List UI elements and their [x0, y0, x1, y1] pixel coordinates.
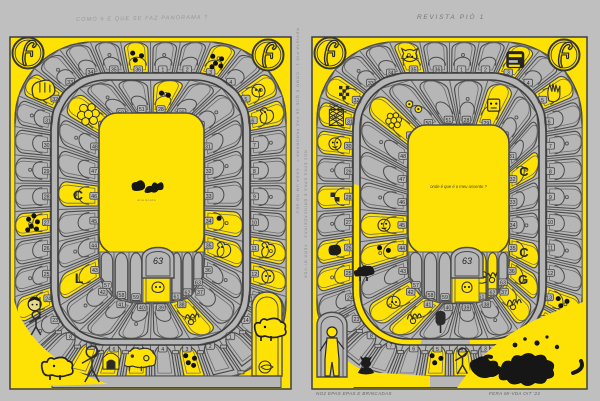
svg-text:57: 57 — [104, 283, 110, 289]
svg-text:C: C — [519, 164, 529, 179]
svg-text:29: 29 — [44, 169, 50, 175]
svg-text:63: 63 — [153, 256, 163, 266]
svg-text:30: 30 — [44, 143, 50, 149]
svg-text:6: 6 — [113, 347, 116, 353]
svg-text:46: 46 — [91, 194, 97, 200]
svg-text:25: 25 — [44, 272, 50, 278]
svg-text:23: 23 — [354, 317, 360, 323]
svg-text:46: 46 — [399, 200, 405, 206]
svg-text:45: 45 — [399, 223, 405, 229]
svg-text:C: C — [73, 187, 83, 203]
svg-text:48: 48 — [400, 154, 406, 160]
svg-text:26: 26 — [346, 246, 352, 252]
svg-text:33: 33 — [206, 194, 212, 200]
svg-text:8: 8 — [549, 169, 552, 175]
svg-text:23: 23 — [52, 318, 58, 324]
svg-text:62: 62 — [185, 290, 191, 296]
svg-text:44: 44 — [399, 246, 405, 252]
svg-text:41: 41 — [425, 302, 431, 308]
svg-text:33: 33 — [510, 200, 516, 206]
svg-text:62: 62 — [490, 290, 496, 296]
svg-text:G: G — [518, 272, 528, 287]
svg-text:41: 41 — [118, 303, 124, 309]
svg-text:8: 8 — [370, 334, 373, 340]
svg-text:59: 59 — [133, 295, 139, 301]
svg-text:27: 27 — [346, 220, 352, 226]
svg-text:61: 61 — [174, 295, 180, 301]
svg-text:32: 32 — [206, 169, 212, 175]
svg-text:28: 28 — [44, 195, 50, 201]
svg-text:34: 34 — [206, 219, 212, 225]
svg-text:REVISTA PIÓ 1 · COMO É QUE SE: REVISTA PIÓ 1 · COMO É QUE SE FAZ PANORA… — [296, 28, 301, 214]
svg-text:7: 7 — [549, 144, 552, 150]
svg-text:32: 32 — [510, 177, 516, 183]
svg-text:57: 57 — [413, 283, 419, 289]
svg-text:39: 39 — [158, 306, 164, 312]
svg-text:45: 45 — [91, 219, 97, 225]
svg-text:3: 3 — [484, 347, 487, 353]
svg-text:47: 47 — [91, 169, 97, 175]
svg-text:24: 24 — [347, 296, 353, 302]
svg-text:37: 37 — [501, 290, 507, 296]
svg-text:36: 36 — [205, 268, 211, 274]
svg-text:26: 26 — [44, 246, 50, 252]
svg-text:43: 43 — [400, 269, 406, 275]
svg-text:51: 51 — [445, 118, 451, 124]
svg-text:2: 2 — [209, 344, 212, 350]
svg-text:48: 48 — [92, 145, 98, 151]
svg-text:11: 11 — [252, 246, 258, 252]
svg-text:40: 40 — [445, 306, 451, 312]
svg-text:63: 63 — [500, 281, 506, 287]
svg-text:35: 35 — [206, 244, 212, 250]
svg-text:38: 38 — [179, 303, 185, 309]
svg-text:28: 28 — [464, 118, 470, 124]
svg-text:14: 14 — [243, 318, 249, 324]
svg-text:L: L — [75, 270, 84, 286]
svg-text:12: 12 — [547, 271, 553, 277]
svg-text:7: 7 — [390, 344, 393, 350]
svg-text:43: 43 — [92, 268, 98, 274]
svg-text:31: 31 — [347, 120, 353, 126]
svg-text:24: 24 — [45, 297, 51, 303]
svg-text:42: 42 — [100, 290, 106, 296]
svg-text:27: 27 — [44, 220, 50, 226]
svg-text:FERA MI-VDA OIT '23: FERA MI-VDA OIT '23 — [489, 391, 540, 396]
svg-text:NO2 EPAS EPAS E BRINCADAS: NO2 EPAS EPAS E BRINCADAS — [316, 391, 392, 396]
svg-text:42: 42 — [408, 290, 414, 296]
svg-text:6: 6 — [251, 119, 254, 125]
svg-text:34: 34 — [510, 223, 516, 229]
svg-text:6: 6 — [548, 120, 551, 126]
svg-text:5: 5 — [436, 347, 439, 353]
svg-text:3: 3 — [186, 347, 189, 353]
svg-text:25: 25 — [346, 271, 352, 277]
svg-text:6: 6 — [412, 347, 415, 353]
svg-text:4: 4 — [161, 347, 164, 353]
svg-text:7: 7 — [253, 143, 256, 149]
svg-text:10: 10 — [251, 220, 257, 226]
svg-text:28: 28 — [346, 195, 352, 201]
svg-text:1: 1 — [229, 335, 232, 341]
svg-text:36: 36 — [509, 269, 515, 275]
svg-text:5: 5 — [541, 98, 544, 104]
svg-text:REVISTA PIÓ 1: REVISTA PIÓ 1 — [417, 12, 485, 21]
svg-text:29: 29 — [346, 169, 352, 175]
svg-text:30: 30 — [346, 144, 352, 150]
svg-text:58: 58 — [119, 293, 125, 299]
svg-text:onde é que é o meu assento ?: onde é que é o meu assento ? — [430, 184, 487, 189]
svg-text:38: 38 — [483, 302, 489, 308]
svg-text:58: 58 — [428, 293, 434, 299]
svg-text:44: 44 — [91, 244, 97, 250]
svg-text:9: 9 — [253, 195, 256, 201]
svg-text:31: 31 — [205, 145, 211, 151]
svg-text:11: 11 — [548, 246, 554, 252]
svg-text:63: 63 — [195, 281, 201, 287]
svg-text:35: 35 — [510, 246, 516, 252]
svg-text:31: 31 — [45, 119, 51, 125]
svg-text:13: 13 — [546, 296, 552, 302]
svg-text:8: 8 — [69, 335, 72, 341]
svg-text:59: 59 — [442, 295, 448, 301]
svg-text:37: 37 — [197, 290, 203, 296]
svg-text:10: 10 — [547, 220, 553, 226]
svg-text:9: 9 — [549, 195, 552, 201]
svg-text:47: 47 — [399, 177, 405, 183]
svg-text:39: 39 — [464, 306, 470, 312]
svg-text:m i o m i o l o: m i o m i o l o — [138, 198, 156, 202]
svg-text:8: 8 — [253, 169, 256, 175]
svg-text:NO2 EPAS EPAS E BRINCADEIRAS ·: NO2 EPAS EPAS E BRINCADEIRAS · FERA MI-V… — [304, 150, 309, 279]
svg-text:C: C — [519, 245, 529, 260]
svg-text:12: 12 — [251, 272, 257, 278]
svg-text:63: 63 — [462, 256, 472, 266]
svg-text:40: 40 — [139, 306, 145, 312]
